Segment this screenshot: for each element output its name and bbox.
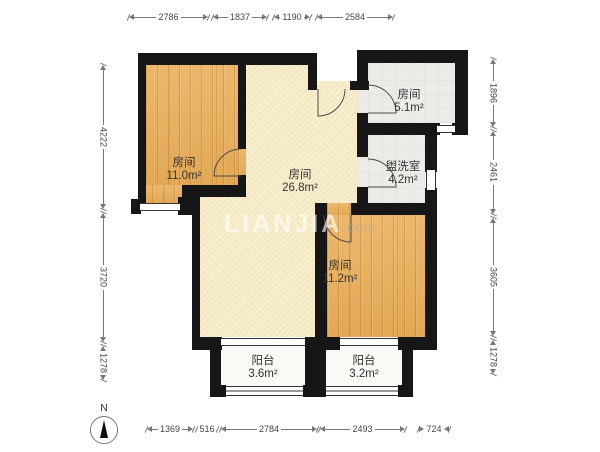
- dim-value: 1190: [280, 13, 303, 22]
- room-area: 5.1m²: [394, 102, 423, 115]
- dimension-top-2: 1837: [212, 11, 268, 23]
- dim-line: [218, 17, 228, 18]
- dim-value: 4222: [99, 125, 108, 149]
- dim-line: [493, 185, 494, 209]
- dim-value: 1278: [489, 345, 498, 369]
- dimension-bottom-5: 724: [417, 423, 451, 435]
- dim-line: [281, 429, 312, 430]
- room-name: 房间: [282, 169, 318, 182]
- dim-line: [493, 136, 494, 160]
- dim-line: [493, 64, 494, 81]
- room-label-balcony-right: 阳台 3.2m²: [349, 355, 378, 381]
- dim-value: 1837: [228, 13, 252, 22]
- room-area: 26.8m²: [282, 182, 318, 195]
- dim-value: 516: [197, 425, 216, 434]
- dim-value: 2493: [350, 425, 374, 434]
- dimension-right-1: 1896: [487, 58, 499, 128]
- dim-value: 1278: [99, 351, 108, 375]
- watermark-suffix: .com: [342, 219, 376, 235]
- dim-line: [493, 223, 494, 265]
- dimension-bottom-3: 2784: [220, 423, 318, 435]
- floor-plan-canvas: LIANJIA.com 房间 11.0m² 房间 26.8m² 房间 5.1m²…: [0, 0, 600, 452]
- room-label-bedroom-left: 房间 11.0m²: [167, 157, 202, 183]
- compass: N: [90, 416, 118, 444]
- dimension-left-3: 1278: [97, 345, 109, 393]
- dim-value: 1896: [489, 81, 498, 105]
- dim-line: [103, 149, 104, 204]
- room-label-bedroom-right: 房间 11.2m²: [323, 260, 358, 286]
- dim-value: 724: [424, 425, 443, 434]
- door-arc-bedroom-left: [214, 149, 241, 176]
- dimension-top-4: 2584: [316, 11, 394, 23]
- dim-line: [103, 70, 104, 125]
- dimension-right-4: 1278: [487, 339, 499, 391]
- dimension-top-3: 1190: [273, 11, 311, 23]
- dim-value: 3605: [489, 265, 498, 289]
- dim-line: [367, 17, 388, 18]
- room-name: 房间: [394, 89, 423, 102]
- lianjia-watermark: LIANJIA.com: [224, 210, 377, 239]
- room-label-balcony-left: 阳台 3.6m²: [248, 355, 277, 381]
- watermark-brand: LIANJIA: [224, 210, 342, 238]
- dim-value: 3720: [99, 265, 108, 289]
- dim-line: [322, 17, 343, 18]
- room-name: 盥洗室: [386, 161, 421, 174]
- dim-line: [181, 17, 203, 18]
- room-label-hall-center: 房间 26.8m²: [282, 169, 318, 195]
- room-name: 阳台: [349, 355, 378, 368]
- compass-n-label: N: [100, 403, 107, 414]
- room-name: 房间: [323, 260, 358, 273]
- dim-line: [375, 429, 400, 430]
- dim-line: [103, 218, 104, 265]
- dimension-right-3: 3605: [487, 217, 499, 337]
- dimension-right-2: 2461: [487, 130, 499, 215]
- room-area: 11.0m²: [167, 170, 202, 183]
- room-name: 房间: [167, 157, 202, 170]
- room-area: 3.6m²: [248, 368, 277, 381]
- dim-value: 2584: [343, 13, 367, 22]
- door-arc-room-topright: [368, 85, 396, 113]
- dimension-bottom-1: 1369: [146, 423, 194, 435]
- room-label-washroom: 盥洗室 4.2m²: [386, 161, 421, 187]
- room-area: 11.2m²: [323, 273, 358, 286]
- dimension-top-1: 2786: [128, 11, 209, 23]
- dim-line: [325, 429, 350, 430]
- dimension-left-2: 3720: [97, 212, 109, 343]
- door-arc-entry: [318, 89, 345, 116]
- dimension-bottom-4: 2493: [319, 423, 406, 435]
- dim-line: [134, 17, 156, 18]
- north-needle-icon: [100, 420, 108, 438]
- dim-value: 2786: [156, 13, 180, 22]
- dimension-bottom-2: 516: [194, 423, 220, 435]
- room-label-room-topright: 房间 5.1m²: [394, 89, 423, 115]
- dim-line: [252, 17, 262, 18]
- dim-line: [493, 289, 494, 331]
- dimension-left-1: 4222: [97, 64, 109, 210]
- room-area: 3.2m²: [349, 368, 378, 381]
- dim-line: [226, 429, 257, 430]
- dim-value: 2461: [489, 160, 498, 184]
- room-area: 4.2m²: [386, 174, 421, 187]
- dim-value: 2784: [257, 425, 281, 434]
- dim-line: [103, 290, 104, 337]
- dim-line: [493, 105, 494, 122]
- room-name: 阳台: [248, 355, 277, 368]
- dim-value: 1369: [158, 425, 182, 434]
